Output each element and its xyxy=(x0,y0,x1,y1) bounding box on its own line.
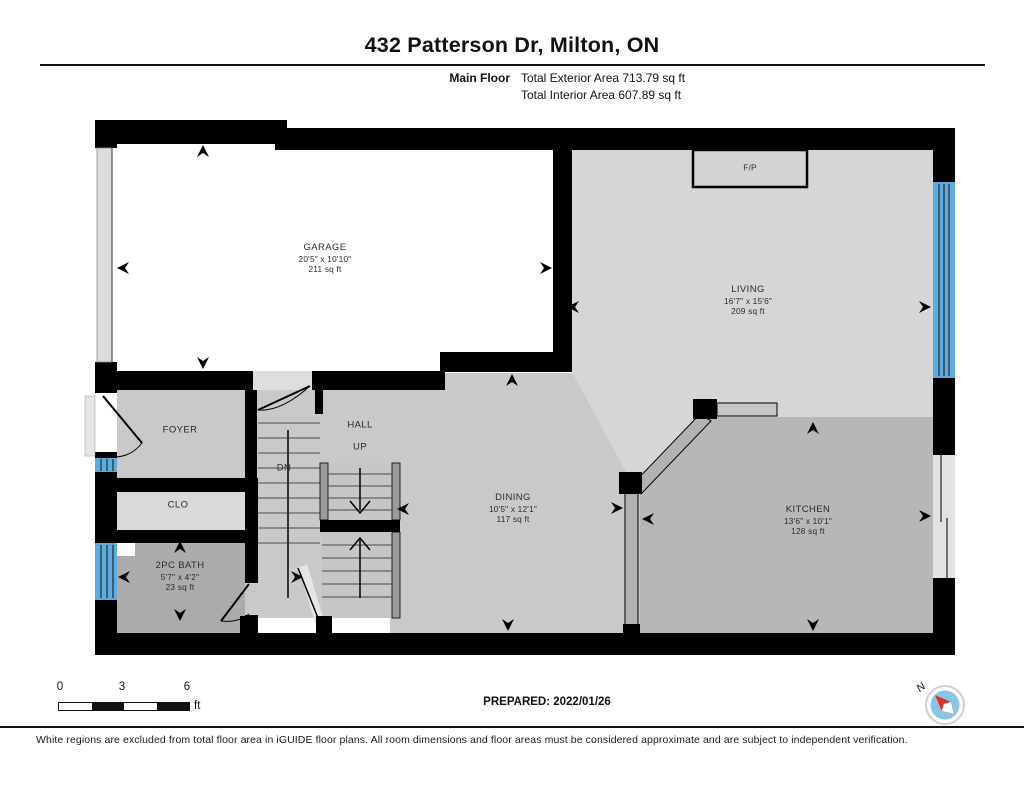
living-dims: 16'7" x 15'6" xyxy=(724,297,772,307)
room-label-hall: HALL xyxy=(347,421,372,432)
room-label-garage: GARAGE 20'5" x 10'10" 211 sq ft xyxy=(299,243,352,275)
room-label-closet: CLO xyxy=(168,501,189,512)
scale-tick-6: 6 xyxy=(184,681,190,693)
living-name: LIVING xyxy=(724,285,772,296)
kitchen-dims: 13'6" x 10'1" xyxy=(784,517,832,527)
patio-door xyxy=(933,455,955,578)
garage-name: GARAGE xyxy=(299,243,352,254)
compass-icon: N xyxy=(916,677,970,731)
fireplace-label: F/P xyxy=(743,163,757,174)
living-area: 209 sq ft xyxy=(724,307,772,317)
room-label-bath: 2PC BATH 5'7" x 4'2" 23 sq ft xyxy=(156,561,205,593)
room-label-kitchen: KITCHEN 13'6" x 10'1" 128 sq ft xyxy=(784,505,832,537)
scale-tick-3: 3 xyxy=(119,681,125,693)
garage-area: 211 sq ft xyxy=(299,265,352,275)
foyer-window xyxy=(95,458,117,472)
floor-plan-svg xyxy=(0,0,1024,791)
scale-unit: ft xyxy=(194,700,200,712)
room-label-living: LIVING 16'7" x 15'6" 209 sq ft xyxy=(724,285,772,317)
room-label-foyer: FOYER xyxy=(163,426,198,437)
kitchen-name: KITCHEN xyxy=(784,505,832,516)
scale-tick-0: 0 xyxy=(57,681,63,693)
stair-up-label: UP xyxy=(353,443,367,454)
garage-door xyxy=(97,148,112,362)
room-label-dining: DINING 10'5" x 12'1" 117 sq ft xyxy=(489,493,537,525)
scale-bar: 0 3 6 ft xyxy=(52,681,212,715)
bath-name: 2PC BATH xyxy=(156,561,205,572)
kitchen-area: 128 sq ft xyxy=(784,527,832,537)
entry-step xyxy=(85,396,95,456)
disclaimer-text: White regions are excluded from total fl… xyxy=(36,734,996,746)
prepared-date: PREPARED: 2022/01/26 xyxy=(377,696,717,708)
scale-bar-segments xyxy=(58,702,190,711)
garage-dims: 20'5" x 10'10" xyxy=(299,255,352,265)
stair-down-label: DN xyxy=(277,464,292,475)
bath-area: 23 sq ft xyxy=(156,583,205,593)
dining-name: DINING xyxy=(489,493,537,504)
living-window xyxy=(933,182,955,378)
floor-plan-page: 432 Patterson Dr, Milton, ON Main Floor … xyxy=(0,0,1024,791)
compass-north-label: N xyxy=(916,680,928,694)
footer-divider xyxy=(0,726,1024,728)
dining-dims: 10'5" x 12'1" xyxy=(489,505,537,515)
bath-dims: 5'7" x 4'2" xyxy=(156,573,205,583)
bath-window xyxy=(95,543,117,600)
dining-area: 117 sq ft xyxy=(489,515,537,525)
